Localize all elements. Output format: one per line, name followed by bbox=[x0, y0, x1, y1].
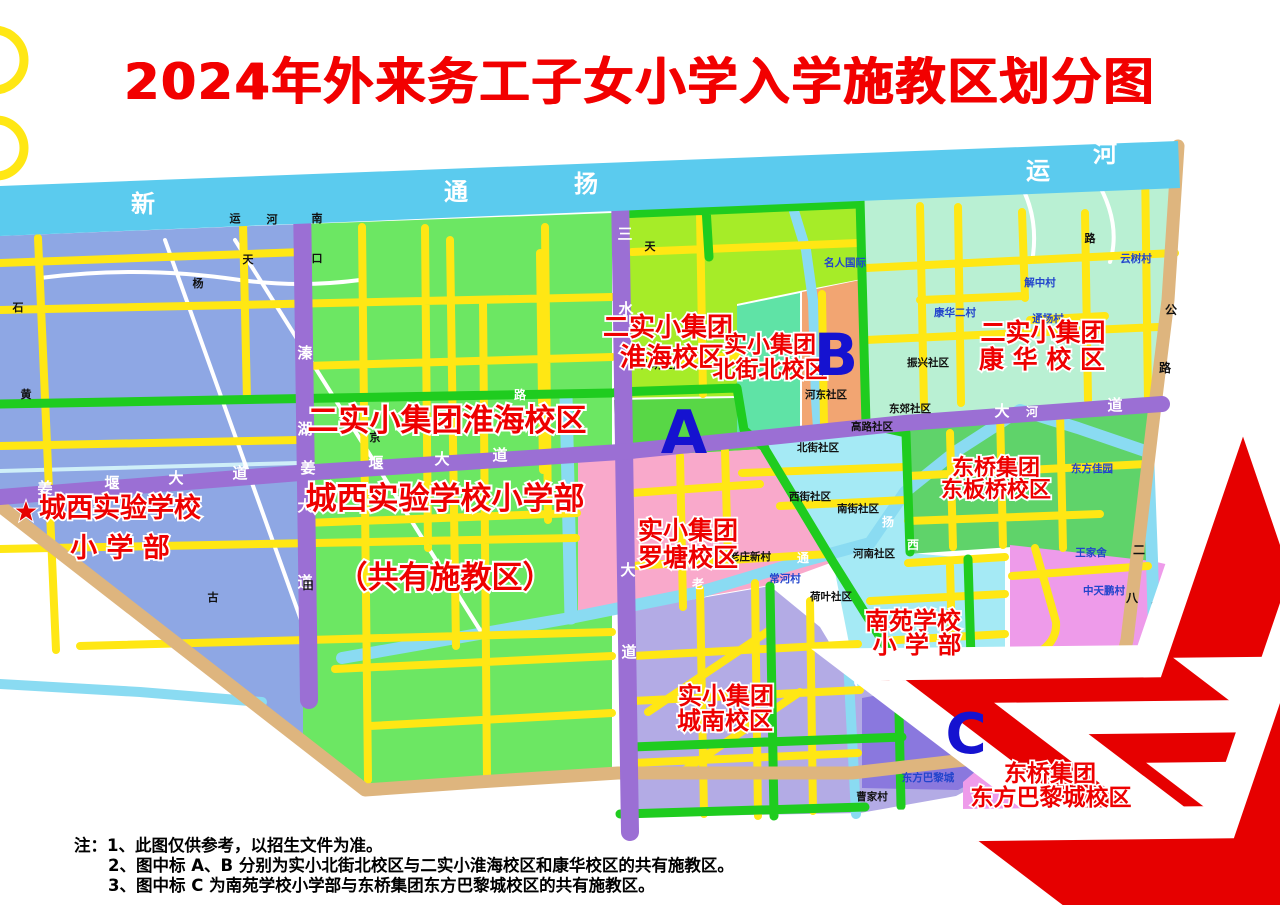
place-label: 北街社区 bbox=[797, 441, 839, 454]
river-char: 老 bbox=[692, 576, 704, 591]
qinhu-char: 溱 bbox=[296, 344, 312, 362]
river-char: 河 bbox=[1025, 404, 1038, 419]
place-label: 东方巴黎城 bbox=[902, 771, 955, 784]
place-label: 河南社区 bbox=[853, 547, 895, 560]
place-label: 河东社区 bbox=[805, 388, 847, 401]
road-char: 运 bbox=[230, 212, 241, 225]
school-label-line1: 城西实验学校 bbox=[39, 492, 201, 524]
river-char: 扬 bbox=[882, 514, 894, 529]
school-label-line2: 北街北校区 bbox=[713, 356, 828, 383]
corner-arc-decoration bbox=[0, 30, 24, 176]
school-label-line2: 东板桥校区 bbox=[941, 477, 1051, 503]
place-label: 南街社区 bbox=[837, 502, 879, 515]
place-label: 东郊社区 bbox=[889, 402, 931, 415]
sanshui-char: 道 bbox=[621, 643, 636, 661]
place-label: 名人国际 bbox=[824, 256, 866, 269]
school-label-line2: 小 学 部 bbox=[873, 631, 962, 659]
jiangyan-char: 大 bbox=[994, 402, 1009, 420]
school-label-line1: 二实小集团 bbox=[603, 312, 733, 343]
jiangyan-char: 道 bbox=[1107, 396, 1122, 414]
zone-letter-a: A bbox=[661, 398, 708, 468]
note-prefix: 注： bbox=[74, 836, 107, 855]
river-char: 通 bbox=[797, 550, 809, 565]
place-label: 康华二村 bbox=[934, 306, 976, 319]
highway-char: 公 bbox=[1165, 303, 1177, 317]
road-char: 杨 bbox=[193, 276, 204, 290]
sanshui-char: 三 bbox=[617, 225, 632, 243]
road-char: 黄 bbox=[21, 387, 32, 401]
place-label: 王家舍 bbox=[1075, 546, 1107, 559]
place-label: 曹家村 bbox=[856, 790, 888, 803]
school-label-line1: 二实小集团 bbox=[980, 318, 1105, 347]
school-label-line1: 实小集团 bbox=[678, 682, 774, 710]
canal-char: 河 bbox=[1093, 140, 1117, 168]
place-label: 中天鹏村 bbox=[1083, 584, 1125, 597]
zone-letter-b: B bbox=[814, 321, 858, 389]
school-label-line2: 康 华 校 区 bbox=[979, 345, 1105, 374]
zone-letter-c: C bbox=[945, 702, 986, 767]
zoning-map-poster: 2024年外来务工子女小学入学施教区划分图 bbox=[0, 0, 1280, 905]
ring-road-char: 八 bbox=[1125, 591, 1139, 605]
avenue-qinhu bbox=[302, 200, 309, 700]
road-char: 天 bbox=[645, 240, 657, 253]
shared-label-line1: 二实小集团淮海校区 bbox=[308, 403, 587, 439]
school-label-line2: 罗塘校区 bbox=[638, 543, 738, 572]
note-line-2: 2、图中标 A、B 分别为实小北街北校区与二实小淮海校区和康华校区的共有施教区。 bbox=[74, 856, 734, 876]
road-char: 河 bbox=[267, 212, 278, 226]
highway-char: 路 bbox=[1159, 360, 1172, 375]
sanshui-char: 大 bbox=[620, 561, 635, 579]
place-label: 常河村 bbox=[769, 572, 801, 585]
notes: 注：1、此图仅供参考，以招生文件为准。 2、图中标 A、B 分别为实小北街北校区… bbox=[74, 836, 734, 896]
road-char: 古 bbox=[208, 590, 219, 604]
jiangyan-char: 道 bbox=[232, 464, 247, 482]
school-label-line2: 城南校区 bbox=[677, 707, 773, 735]
school-label-line1: 东桥集团 bbox=[1004, 760, 1096, 787]
jiangyan-char: 堰 bbox=[368, 454, 383, 472]
road-char: 南 bbox=[312, 211, 323, 225]
canal-char: 新 bbox=[131, 190, 155, 218]
place-label: 云树村 bbox=[1120, 252, 1152, 265]
school-label-line1: 实小集团 bbox=[724, 331, 816, 358]
jiangyan-char: 道 bbox=[492, 446, 507, 464]
district-map: 新 通 扬 运 河 溱 湖 大 道 三 水 大 道 姜 堰 大 道 姜 堰 大 … bbox=[0, 0, 1280, 905]
road-char: 石 bbox=[12, 301, 24, 314]
green-road-char: 路 bbox=[514, 387, 527, 402]
jiangyan-char: 堰 bbox=[104, 474, 119, 492]
road-char: 路 bbox=[1085, 231, 1097, 245]
shared-label-line2: 城西实验学校小学部 bbox=[306, 481, 585, 517]
jiangyan-char: 大 bbox=[434, 450, 449, 468]
note-line-1: 注：1、此图仅供参考，以招生文件为准。 bbox=[74, 836, 734, 856]
school-label-line2: 淮海校区 bbox=[620, 342, 724, 373]
avenue-sanshui bbox=[620, 190, 630, 832]
shared-district-label: 二实小集团淮海校区 城西实验学校小学部 （共有施教区） bbox=[306, 403, 587, 596]
road-char: 口 bbox=[312, 252, 323, 265]
river-char: 西 bbox=[907, 538, 919, 552]
canal-char: 运 bbox=[1026, 157, 1050, 185]
road-char: 田 bbox=[303, 579, 314, 592]
school-label-line2: 小 学 部 bbox=[70, 532, 170, 564]
place-label: 高路社区 bbox=[851, 420, 893, 433]
ring-road-char: 二 bbox=[1133, 543, 1145, 557]
place-label: 荷叶社区 bbox=[809, 590, 852, 603]
note-item: 1、此图仅供参考，以招生文件为准。 bbox=[107, 836, 382, 855]
jiangyan-char: 姜 bbox=[300, 459, 315, 477]
place-label: 解中村 bbox=[1023, 276, 1056, 289]
shared-label-line3: （共有施教区） bbox=[337, 560, 554, 596]
place-label: 振兴社区 bbox=[907, 356, 949, 369]
school-label-line2: 东方巴黎城校区 bbox=[971, 784, 1132, 811]
canal-char: 通 bbox=[444, 178, 468, 206]
jiangyan-char: 大 bbox=[168, 469, 183, 487]
road-char: 天 bbox=[243, 253, 255, 266]
school-label-line1: 实小集团 bbox=[638, 516, 738, 545]
place-label: 东方佳园 bbox=[1071, 462, 1113, 475]
place-label: 西街社区 bbox=[789, 490, 831, 503]
note-line-3: 3、图中标 C 为南苑学校小学部与东桥集团东方巴黎城校区的共有施教区。 bbox=[74, 876, 734, 896]
canal-char: 扬 bbox=[574, 170, 598, 198]
